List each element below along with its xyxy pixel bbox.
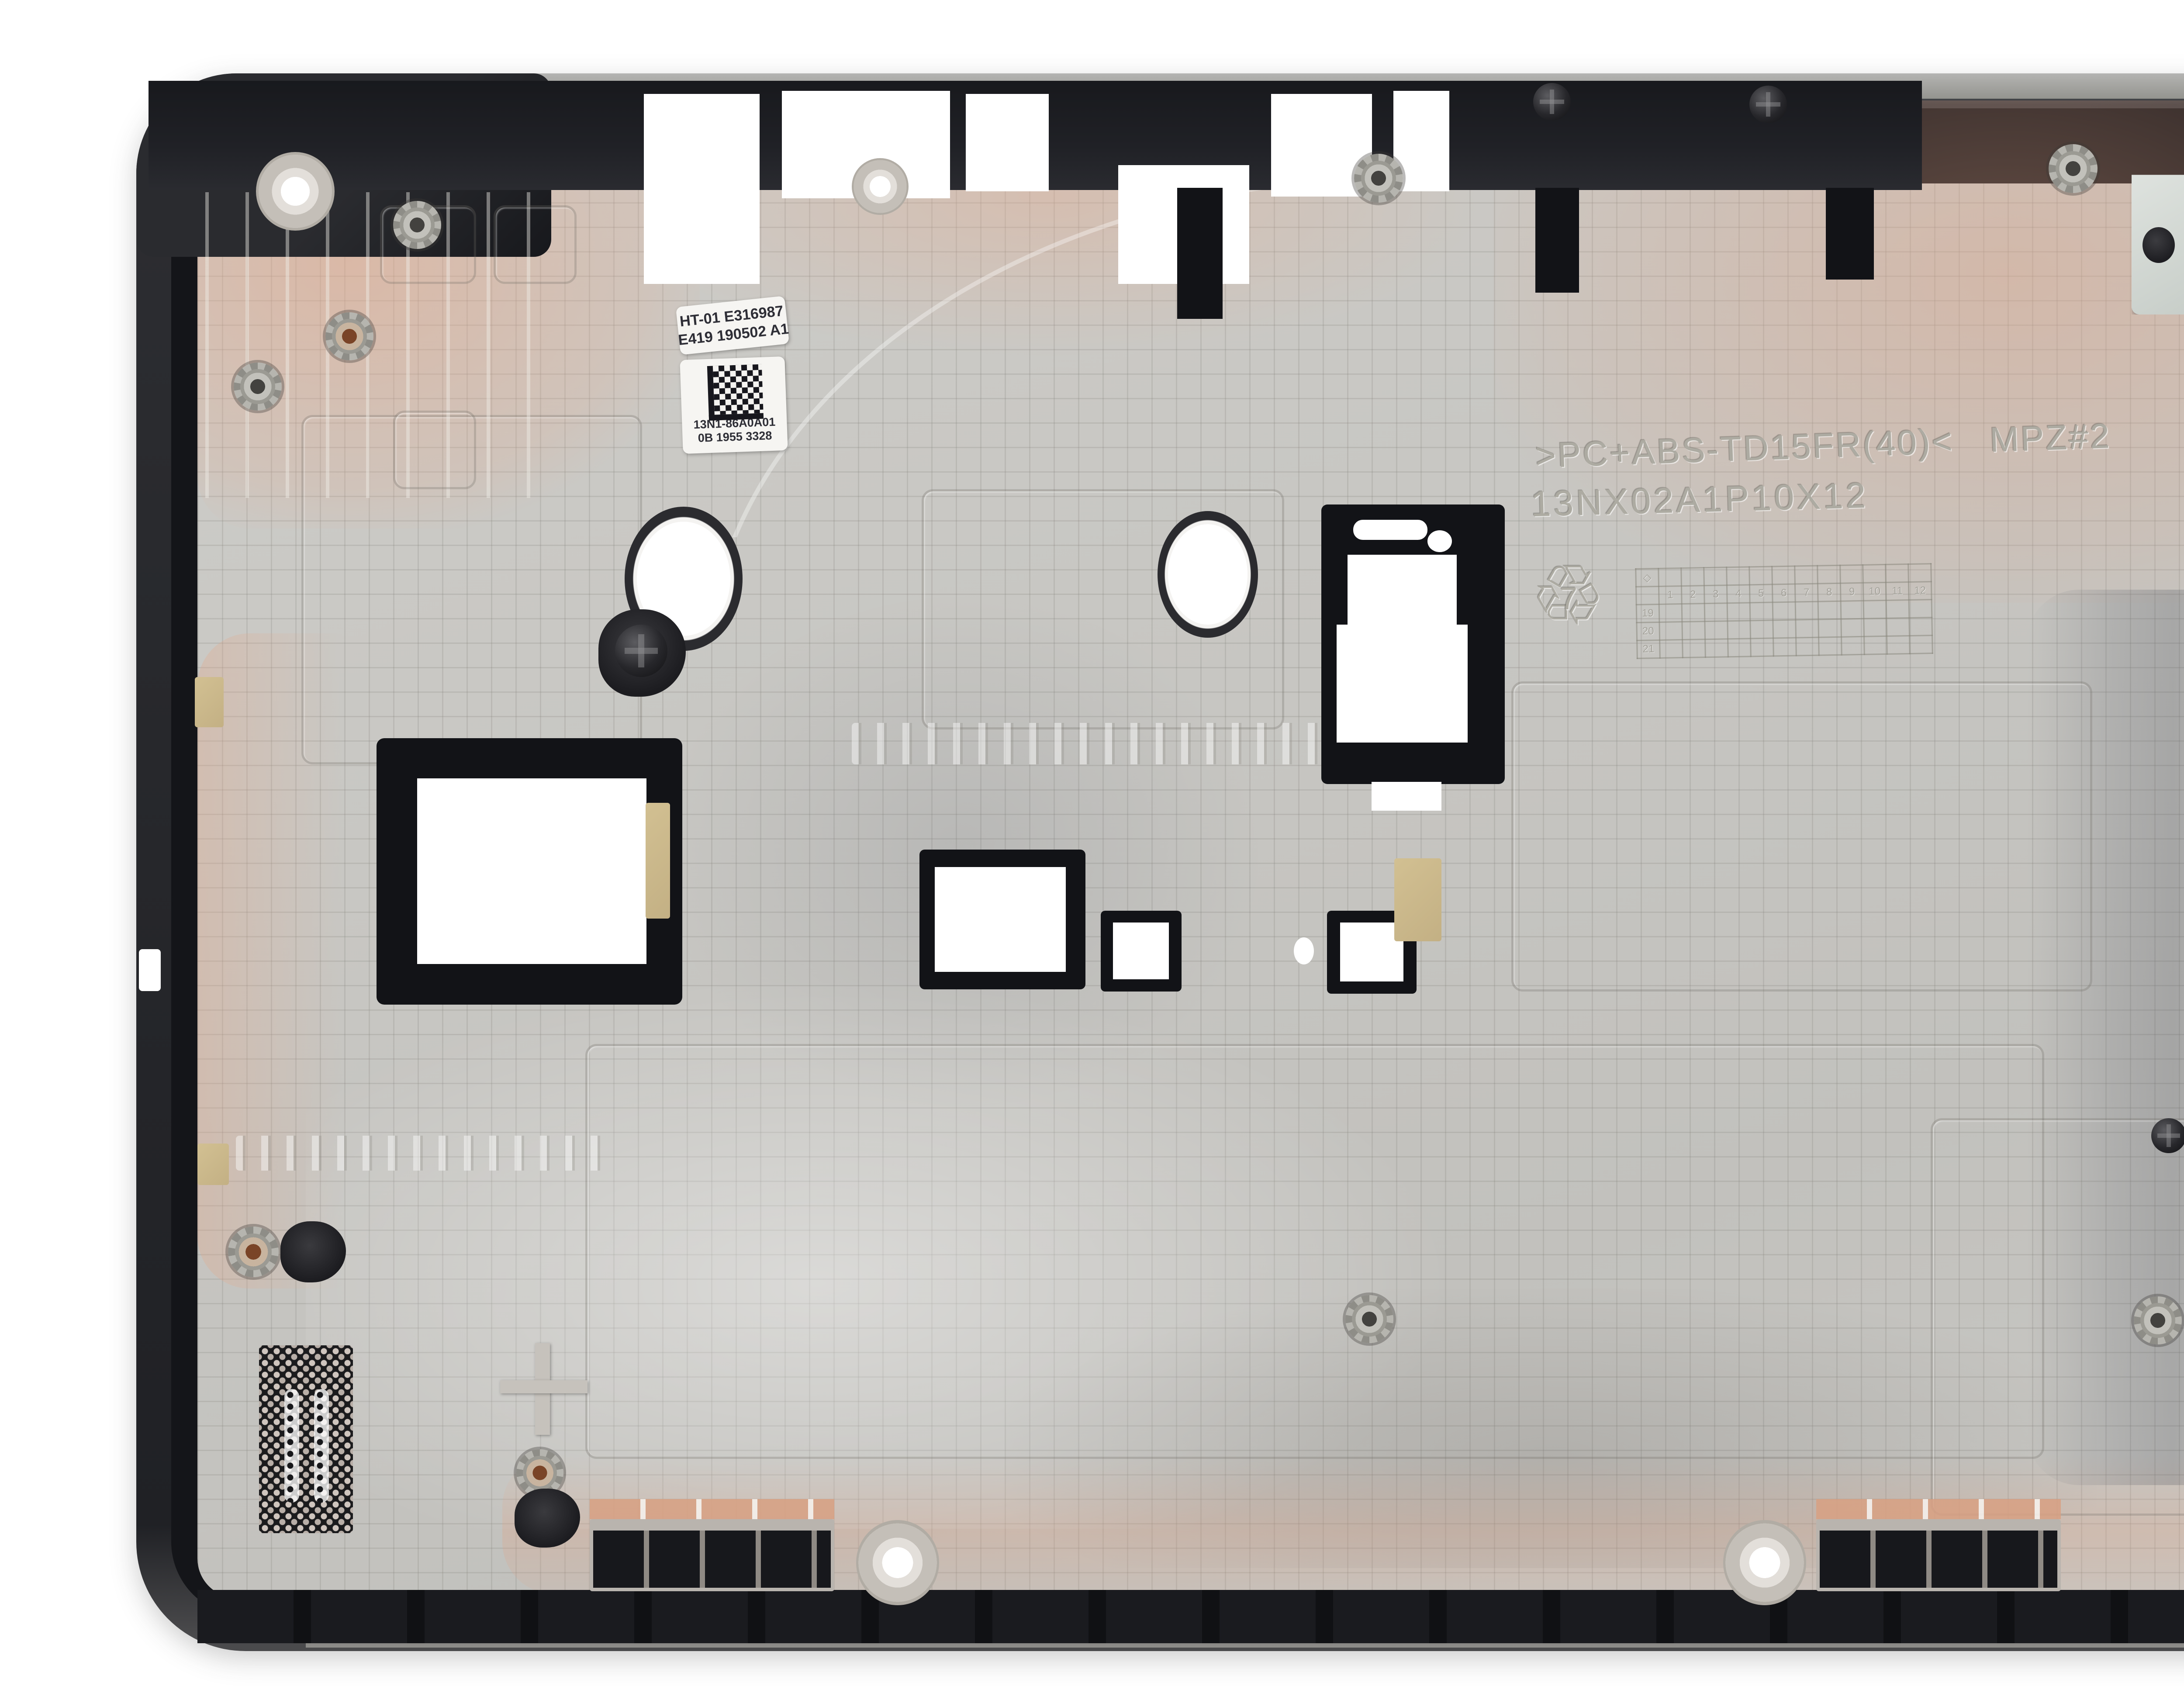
resin-number: 7 <box>1560 581 1577 617</box>
case-top-edge <box>236 73 2184 99</box>
datamatrix-barcode-icon <box>707 364 764 421</box>
grommet-screw-left <box>615 625 667 677</box>
bracket-hole-3 <box>2143 227 2175 263</box>
recess-top-left-1 <box>380 205 476 284</box>
gear-boss-1 <box>393 201 441 249</box>
cutout-top-3 <box>966 94 1049 191</box>
vent-bottom-right <box>1816 1519 2061 1591</box>
gear-boss-2 <box>325 312 373 360</box>
kapton-tape-battery <box>646 803 670 919</box>
copper-tint-top-center <box>590 87 1507 358</box>
molded-material-line: >PC+ABS-TD15FR(40)< MPZ#2 <box>1535 416 2112 476</box>
panel-outline-bottom <box>585 1044 2044 1459</box>
panel-outline-center <box>922 489 1284 729</box>
shadow-bottom-center <box>1005 1289 2097 1568</box>
cross-bracket-h <box>500 1380 587 1393</box>
screw-boss-top-left <box>256 152 335 231</box>
io-frame-window-main <box>1348 555 1457 686</box>
recess-top-left-2 <box>494 205 577 284</box>
gear-boss-bottom-right <box>2134 1296 2182 1344</box>
cutout-top-4 <box>1118 165 1249 284</box>
vent-bottom-left <box>590 1519 834 1591</box>
snap-tab-3 <box>1826 188 1874 280</box>
cross-bracket-v <box>535 1343 550 1435</box>
screw-top-2 <box>1749 86 1787 123</box>
kapton-tape-left-2 <box>197 1144 229 1185</box>
bottom-rim-band <box>197 1590 2184 1643</box>
panel-outline-left <box>301 415 642 764</box>
rib-texture-top-left <box>205 192 546 498</box>
slot-recess-band-center <box>852 723 1485 764</box>
recycling-icon: ♲ <box>1531 555 1605 638</box>
copper-tint-top-right <box>1494 100 2184 603</box>
barcode-label-line2: 0B 1955 3328 <box>698 429 772 445</box>
left-rim-notch <box>139 949 161 991</box>
porthole-right <box>1158 511 1258 638</box>
porthole-left <box>625 507 743 651</box>
gear-boss-top-center <box>1354 154 1403 203</box>
frame-cutout-a <box>919 850 1085 989</box>
highlight-bottom-left <box>306 983 1441 1529</box>
snap-tab-1 <box>1177 188 1223 319</box>
gear-boss-bottom-left <box>228 1227 279 1277</box>
screw-boss-top-center <box>852 158 909 215</box>
case-outer-rim <box>136 73 2184 1651</box>
case-inner-face <box>197 183 2184 1598</box>
gear-boss-top-right <box>2049 144 2098 193</box>
copper-tint-top-left <box>197 114 700 529</box>
battery-window <box>417 778 646 964</box>
io-frame-window-lower <box>1337 625 1468 743</box>
gear-boss-3 <box>234 363 282 411</box>
frame-cutout-c-window <box>1340 923 1403 981</box>
speaker-grille-left <box>259 1345 353 1533</box>
copper-tint-mid-left <box>197 633 381 1289</box>
copper-tint-bottom <box>502 1455 2184 1594</box>
photo-laptop-bottom-case: HT-01 E316987 E419 190502 A1 13N1-86A0A0… <box>0 0 2184 1700</box>
recycling-symbol: ♲ 7 <box>1531 555 1618 655</box>
cutout-top-5 <box>1271 94 1372 197</box>
cutout-top-6 <box>1393 91 1449 191</box>
speaker-slot-left-2 <box>314 1389 329 1503</box>
io-frame-right-center <box>1321 504 1505 784</box>
screw-blob-bottom-left <box>280 1221 346 1282</box>
snap-tab-2 <box>1535 188 1579 293</box>
grommet-blob-left <box>598 609 686 697</box>
frame-cutout-b <box>1101 911 1182 992</box>
io-frame-hole-round <box>1427 530 1452 552</box>
barcode-label: 13N1-86A0A01 0B 1955 3328 <box>680 356 788 454</box>
esn-label-line1: HT-01 E316987 <box>679 301 784 331</box>
frame-cutout-a-window <box>935 867 1066 972</box>
kapton-tape-center <box>1394 858 1441 941</box>
shadow-right-column <box>2027 590 2184 1485</box>
molded-mold-id: MPZ#2 <box>1989 416 2112 460</box>
recess-top-left-3 <box>393 411 476 489</box>
top-hinge-band <box>149 81 1922 190</box>
barcode-label-line1: 13N1-86A0A01 <box>693 415 776 432</box>
panel-outline-bottom-right <box>1931 1118 2184 1516</box>
screw-top-1 <box>1533 83 1571 121</box>
screw-mid-right <box>2151 1118 2184 1153</box>
cutout-top-2 <box>782 91 950 198</box>
screw-blob-bottom-left-2 <box>515 1489 580 1548</box>
slot-recess-band-left <box>236 1136 612 1171</box>
hinge-bracket-plate <box>2132 144 2184 314</box>
battery-frame <box>377 738 682 1005</box>
case-inner-channel <box>171 108 2184 1616</box>
io-frame-slot-bottom <box>1372 782 1441 811</box>
molded-part-number: 13NX02A1P10X12 <box>1531 475 1869 525</box>
gloss-arc <box>677 122 1441 537</box>
case-bottom-edge <box>306 1626 2184 1648</box>
top-left-corner-block <box>136 73 551 257</box>
esn-label-line2: E419 190502 A1 <box>677 320 790 350</box>
esn-label: HT-01 E316987 E419 190502 A1 <box>676 296 789 355</box>
screw-boss-bottom-1 <box>856 1520 939 1605</box>
cutout-top-1 <box>644 94 760 284</box>
oval-hole-center <box>1294 937 1314 964</box>
gear-boss-bottom-center <box>1345 1295 1393 1343</box>
shadow-center <box>655 590 1267 1114</box>
mold-date-wheel: ◇123456789101112192021 <box>1635 563 1933 659</box>
panel-outline-right <box>1511 681 2092 992</box>
frame-cutout-b-window <box>1113 923 1169 979</box>
gear-boss-bottom-left-2 <box>516 1449 563 1496</box>
screw-boss-bottom-2 <box>1723 1520 1806 1605</box>
kapton-tape-left-1 <box>195 677 224 727</box>
io-frame-slot-top <box>1353 520 1427 540</box>
frame-cutout-c <box>1327 911 1417 994</box>
molded-material-code: >PC+ABS-TD15FR(40)< <box>1535 422 1955 475</box>
speaker-slot-left-1 <box>284 1389 299 1503</box>
